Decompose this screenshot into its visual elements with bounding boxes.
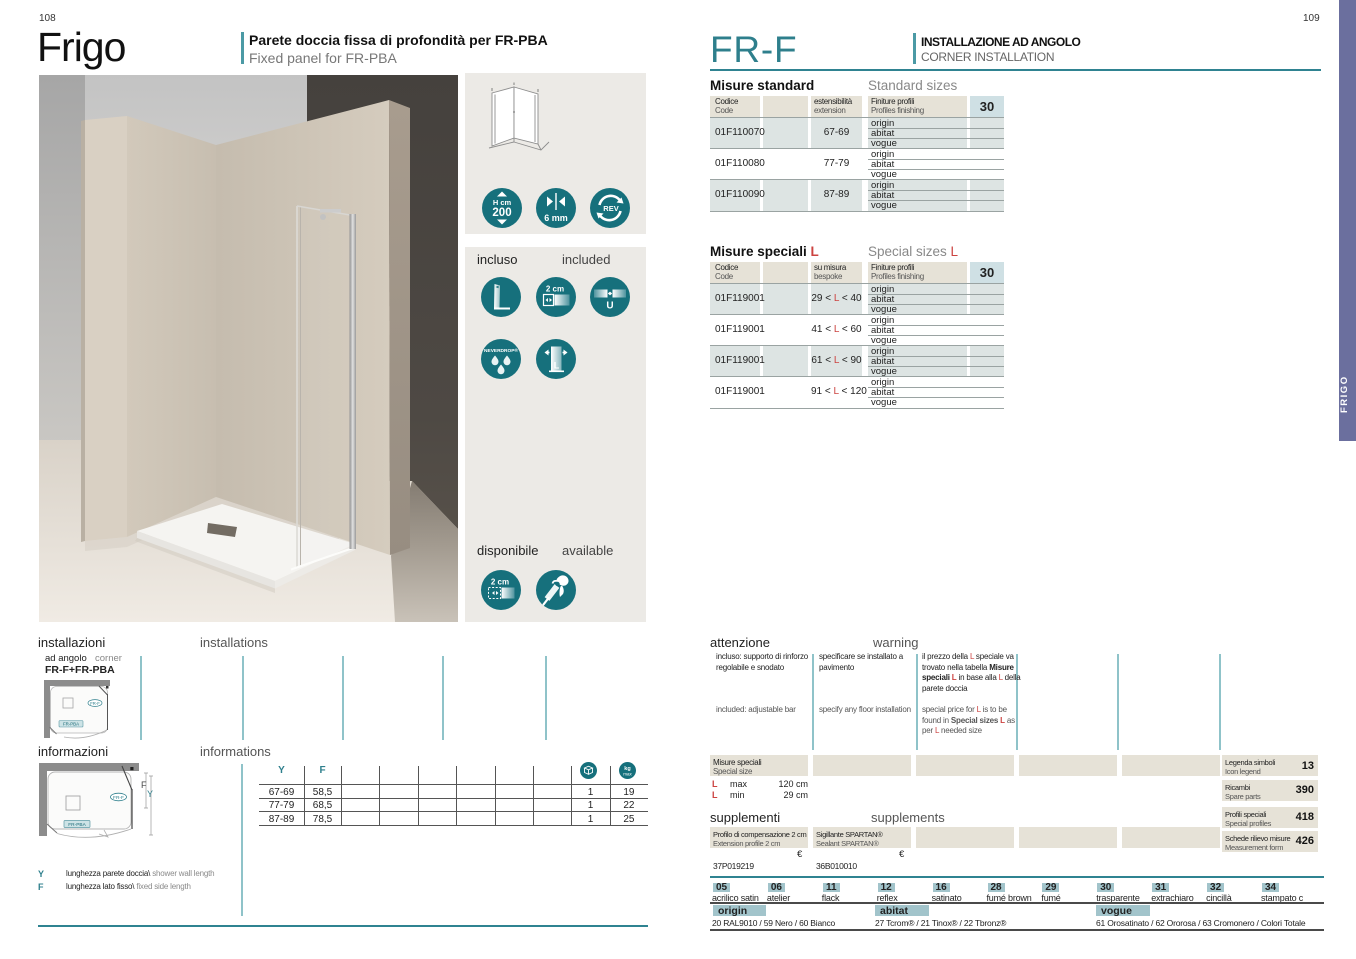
svg-text:U: U [606, 301, 613, 312]
svg-text:max: max [623, 772, 632, 777]
svg-text:6 mm: 6 mm [544, 213, 568, 223]
svg-text:REV: REV [603, 204, 618, 213]
svg-text:FR-PBA: FR-PBA [63, 722, 79, 727]
svg-text:FR-PBA: FR-PBA [68, 822, 86, 828]
svg-text:H cm: H cm [493, 198, 512, 207]
svg-text:2 cm: 2 cm [546, 285, 564, 294]
svg-text:L: L [554, 361, 560, 371]
svg-text:200: 200 [492, 207, 511, 219]
svg-text:NEVERDROP®: NEVERDROP® [484, 347, 518, 354]
svg-text:2 cm: 2 cm [491, 578, 509, 587]
svg-text:FR-F: FR-F [113, 795, 124, 801]
svg-text:FR-F: FR-F [90, 701, 100, 706]
